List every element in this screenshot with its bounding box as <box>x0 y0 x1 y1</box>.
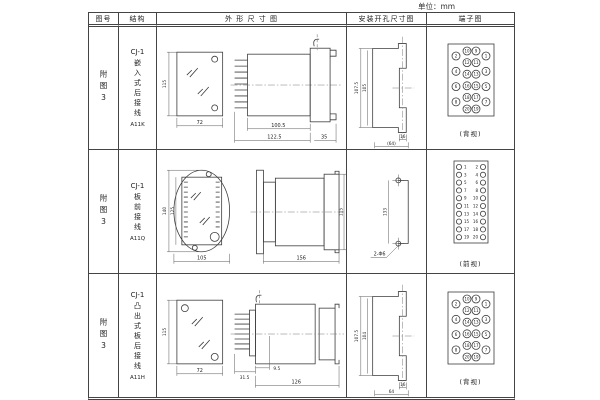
svg-text:2: 2 <box>475 164 478 169</box>
svg-text:13: 13 <box>473 319 479 324</box>
terminal-view-label: (背视) <box>459 376 481 386</box>
svg-text:16: 16 <box>464 83 470 88</box>
svg-text:15: 15 <box>464 219 470 224</box>
svg-text:9: 9 <box>474 49 477 54</box>
svg-text:13: 13 <box>473 72 479 77</box>
structure-desc: 凸出式板后接线 <box>133 302 143 372</box>
row1-fig-no: 附图3 <box>89 27 119 150</box>
svg-text:12: 12 <box>464 60 470 65</box>
mounting-hole-drawing: 107.5 105 16 (64) <box>347 27 426 150</box>
row3-outline-drawing: 115 72 31.5 9.5 126 <box>157 274 347 397</box>
fig-no-label: 附图3 <box>98 194 109 230</box>
svg-text:6: 6 <box>454 84 457 89</box>
svg-text:9: 9 <box>464 195 467 200</box>
svg-text:15: 15 <box>473 331 479 336</box>
structure-code: A11K <box>130 122 144 128</box>
dim-inner-height: 105 <box>362 84 367 92</box>
header-fig-no: 图号 <box>89 13 119 27</box>
svg-text:14: 14 <box>464 72 470 77</box>
svg-text:9: 9 <box>474 296 477 301</box>
outline-dimension-drawing: 115 72 31.5 9.5 126 <box>157 274 346 397</box>
svg-text:8: 8 <box>475 187 478 192</box>
svg-text:18: 18 <box>464 342 470 347</box>
svg-text:4: 4 <box>475 172 478 177</box>
svg-text:3: 3 <box>464 172 467 177</box>
model-label: CJ-1 <box>131 48 145 56</box>
svg-text:11: 11 <box>473 60 479 65</box>
svg-text:3: 3 <box>484 69 487 74</box>
svg-text:2: 2 <box>454 54 457 59</box>
dim-outer-height: 107.5 <box>354 329 359 341</box>
dim-front-width: 105 <box>197 255 206 261</box>
svg-text:14: 14 <box>464 319 470 324</box>
terminal-view-label: (背视) <box>459 128 481 138</box>
svg-text:14: 14 <box>472 211 478 216</box>
dim-front-height: 115 <box>162 80 168 88</box>
svg-text:19: 19 <box>464 234 470 239</box>
svg-text:19: 19 <box>473 354 479 359</box>
header-outline: 外 形 尺 寸 图 <box>157 13 347 27</box>
svg-text:8: 8 <box>454 347 457 352</box>
dim-rear-height: 115 <box>339 207 345 215</box>
dim-body-depth: 100.5 <box>271 123 285 129</box>
row3-fig-no: 附图3 <box>89 274 119 397</box>
fig-no-label: 附图3 <box>98 70 109 106</box>
svg-text:6: 6 <box>454 332 457 337</box>
structure-code: A11H <box>130 375 145 381</box>
dim-slot-width: 16 <box>400 134 406 139</box>
svg-text:16: 16 <box>464 331 470 336</box>
row2-outline-drawing: 140 125 105 156 115 <box>157 150 347 274</box>
dim-flange-depth: 35 <box>321 135 327 141</box>
dim-comb-depth: 31.5 <box>240 374 250 380</box>
outline-dimension-drawing: 140 125 105 156 115 <box>157 150 346 274</box>
svg-text:4: 4 <box>454 316 457 321</box>
svg-text:6: 6 <box>475 180 478 185</box>
structure-desc: 嵌入式后接线 <box>133 59 143 119</box>
spec-table: 图号 结构 外 形 尺 寸 图 安装开孔尺寸图 端子图 附图3 CJ-1 嵌入式… <box>88 12 515 400</box>
svg-text:18: 18 <box>464 95 470 100</box>
mounting-hole-drawing: 133 2-Φ6 <box>347 150 426 274</box>
svg-text:7: 7 <box>464 187 467 192</box>
dim-front-width: 72 <box>197 367 203 373</box>
dim-total-depth: 122.5 <box>267 135 281 141</box>
svg-text:7: 7 <box>484 347 487 352</box>
dim-body-depth: 126 <box>292 379 301 385</box>
svg-text:18: 18 <box>472 226 478 231</box>
svg-text:11: 11 <box>464 203 470 208</box>
svg-text:16: 16 <box>472 219 478 224</box>
svg-text:8: 8 <box>454 99 457 104</box>
dim-front-height: 115 <box>162 327 168 335</box>
svg-text:12: 12 <box>464 308 470 313</box>
fig-no-label: 附图3 <box>98 318 109 354</box>
svg-text:10: 10 <box>464 49 470 54</box>
row2-structure: CJ-1 板前接线 A11Q <box>119 150 157 274</box>
model-label: CJ-1 <box>131 291 145 299</box>
svg-text:15: 15 <box>473 83 479 88</box>
row2-fig-no: 附图3 <box>89 150 119 274</box>
header-terminal: 端子图 <box>427 13 514 27</box>
row3-mounting-drawing: 107.5 104 16 64 <box>347 274 427 397</box>
svg-text:1: 1 <box>484 301 487 306</box>
dim-body-depth: 156 <box>296 255 305 261</box>
structure-desc: 板前接线 <box>133 193 143 233</box>
svg-text:19: 19 <box>473 107 479 112</box>
svg-text:20: 20 <box>472 234 478 239</box>
header-mounting: 安装开孔尺寸图 <box>347 13 427 27</box>
svg-text:11: 11 <box>473 308 479 313</box>
dim-front-outer-height: 140 <box>162 206 168 214</box>
terminal-grid-diagram: 2468101214161820911131517191357 <box>427 38 514 126</box>
dim-slot-width: 16 <box>400 381 406 386</box>
dim-outer-height: 107.5 <box>354 82 359 94</box>
svg-text:17: 17 <box>464 226 470 231</box>
svg-text:17: 17 <box>473 95 479 100</box>
svg-text:10: 10 <box>464 296 470 301</box>
dim-overall-width: (64) <box>387 141 396 146</box>
dim-overall-width: 64 <box>389 388 395 393</box>
svg-text:12: 12 <box>472 203 478 208</box>
row1-structure: CJ-1 嵌入式后接线 A11K <box>119 27 157 150</box>
svg-text:13: 13 <box>464 211 470 216</box>
svg-text:3: 3 <box>484 316 487 321</box>
svg-text:2: 2 <box>454 301 457 306</box>
row2-mounting-drawing: 133 2-Φ6 <box>347 150 427 274</box>
row1-terminal-diagram: 2468101214161820911131517191357 (背视) <box>427 27 514 150</box>
dim-gap-depth: 9.5 <box>273 365 280 371</box>
mounting-hole-drawing: 107.5 104 16 64 <box>347 274 426 397</box>
terminal-grid-diagram: 2468101214161820911131517191357 <box>427 286 514 374</box>
row3-terminal-diagram: 2468101214161820911131517191357 (背视) <box>427 274 514 397</box>
outline-dimension-drawing: 115 72 100.5 122.5 35 <box>157 27 346 150</box>
row3-structure: CJ-1 凸出式板后接线 A11H <box>119 274 157 397</box>
terminal-strip-diagram: 1357911131517192468101214161820 <box>427 156 514 256</box>
row1-mounting-drawing: 107.5 105 16 (64) <box>347 27 427 150</box>
dim-inner-height: 104 <box>362 331 367 339</box>
unit-label: 单位：mm <box>418 1 455 12</box>
svg-text:7: 7 <box>484 99 487 104</box>
hole-spec-label: 2-Φ6 <box>374 251 386 257</box>
svg-text:20: 20 <box>464 354 470 359</box>
svg-text:5: 5 <box>464 180 467 185</box>
dim-front-width: 72 <box>197 120 203 126</box>
header-structure: 结构 <box>119 13 157 27</box>
dim-front-inner-height: 125 <box>170 206 176 214</box>
dim-hole-spacing: 133 <box>383 207 388 215</box>
svg-text:20: 20 <box>464 107 470 112</box>
svg-text:4: 4 <box>454 69 457 74</box>
svg-text:5: 5 <box>484 332 487 337</box>
svg-text:5: 5 <box>484 84 487 89</box>
model-label: CJ-1 <box>131 182 145 190</box>
svg-text:1: 1 <box>484 54 487 59</box>
terminal-view-label: (前视) <box>459 258 481 268</box>
svg-text:1: 1 <box>464 164 467 169</box>
structure-code: A11Q <box>130 236 145 242</box>
svg-text:17: 17 <box>473 342 479 347</box>
row1-outline-drawing: 115 72 100.5 122.5 35 <box>157 27 347 150</box>
svg-text:10: 10 <box>472 195 478 200</box>
row2-terminal-diagram: 1357911131517192468101214161820 (前视) <box>427 150 514 274</box>
